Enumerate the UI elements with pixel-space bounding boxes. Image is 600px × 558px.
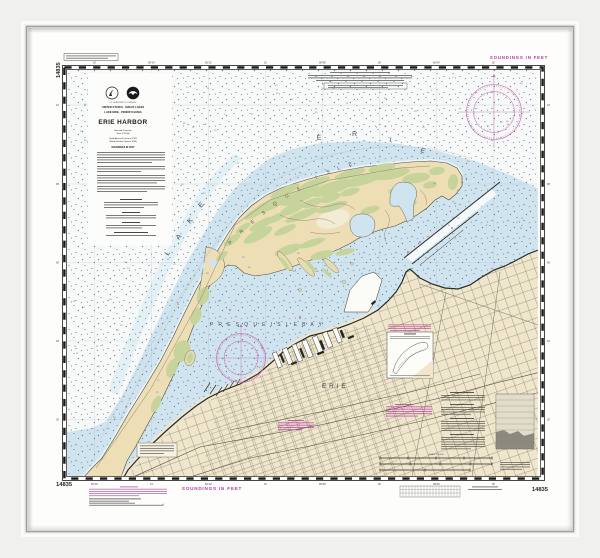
svg-text:SOUNDINGS IN FEET: SOUNDINGS IN FEET [490,55,548,60]
svg-text:ERIE HARBOR: ERIE HARBOR [98,119,147,126]
svg-text:80°04': 80°04' [433,62,440,65]
svg-text:80°12': 80°12' [205,62,212,65]
svg-text:16': 16' [93,62,97,65]
svg-text:SOUNDINGS IN FEET: SOUNDINGS IN FEET [182,486,242,491]
svg-text:04': 04' [56,340,60,343]
svg-text:10': 10' [547,104,551,107]
svg-text:06': 06' [56,262,60,265]
svg-text:SOUNDINGS IN FEET: SOUNDINGS IN FEET [111,147,135,149]
svg-text:SCALE 1:20,000: SCALE 1:20,000 [429,453,445,456]
svg-text:14835: 14835 [56,62,62,78]
svg-text:ERIE: ERIE [322,383,348,390]
svg-text:80°04': 80°04' [433,483,440,486]
svg-text:Scale 1:20,000: Scale 1:20,000 [116,133,130,135]
svg-text:P R E S Q U E I S L E B A: P R E S Q U E I S L E B A Y [210,322,324,328]
svg-text:14835: 14835 [56,482,73,488]
svg-text:02': 02' [547,419,551,422]
svg-text:08': 08' [56,183,60,186]
svg-text:80°16': 80°16' [91,483,98,486]
svg-text:North American Datum of 1983: North American Datum of 1983 [109,137,137,140]
svg-text:02': 02' [492,483,496,486]
svg-text:02': 02' [56,419,60,422]
svg-text:10': 10' [264,483,268,486]
svg-text:14835: 14835 [532,487,549,493]
svg-text:R: R [352,131,357,138]
svg-text:06': 06' [378,62,382,65]
svg-text:10': 10' [56,104,60,107]
svg-text:08': 08' [547,183,551,186]
svg-text:04': 04' [547,340,551,343]
svg-text:06': 06' [547,262,551,265]
svg-text:14': 14' [150,483,154,486]
svg-text:(World Geodetic System 1984): (World Geodetic System 1984) [109,140,137,143]
svg-text:80°14': 80°14' [148,62,155,65]
svg-text:02': 02' [492,62,496,65]
svg-text:Mercator Projection: Mercator Projection [114,129,131,132]
svg-text:80°08': 80°08' [319,483,326,486]
svg-text:10': 10' [264,62,268,65]
svg-text:UNITED STATES - GREAT LAKES: UNITED STATES - GREAT LAKES [102,105,145,109]
svg-text:06': 06' [378,483,382,486]
svg-text:80°08': 80°08' [319,62,326,65]
svg-text:LAKE ERIE - PENNSYLVANIA: LAKE ERIE - PENNSYLVANIA [104,110,141,114]
